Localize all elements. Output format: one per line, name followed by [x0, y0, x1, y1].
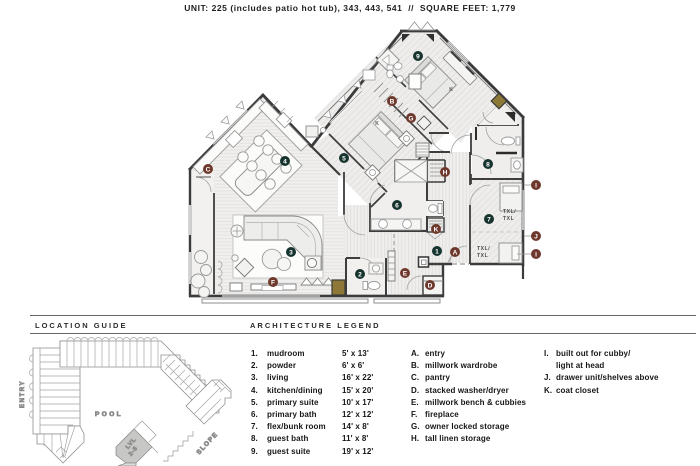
svg-text:I: I	[535, 182, 537, 189]
svg-text:7: 7	[487, 216, 491, 223]
svg-text:B: B	[390, 98, 395, 105]
svg-text:9: 9	[416, 53, 420, 60]
svg-text:TXL/: TXL/	[477, 246, 490, 252]
svg-text:TXL: TXL	[477, 253, 488, 259]
svg-text:K: K	[449, 87, 453, 93]
svg-text:8: 8	[486, 161, 490, 168]
svg-text:A: A	[453, 249, 458, 256]
svg-text:E: E	[403, 270, 408, 277]
svg-text:K: K	[434, 226, 439, 233]
svg-text:SLOPE: SLOPE	[195, 431, 219, 456]
svg-text:5: 5	[342, 155, 346, 162]
svg-text:TXL/: TXL/	[503, 209, 516, 215]
svg-text:ENTRY: ENTRY	[20, 380, 26, 408]
svg-text:J: J	[534, 233, 538, 240]
svg-text:K: K	[375, 121, 379, 127]
svg-text:TXL: TXL	[503, 216, 514, 222]
svg-text:I: I	[535, 251, 537, 258]
svg-text:H: H	[443, 169, 448, 176]
svg-text:2: 2	[358, 271, 362, 278]
svg-text:D: D	[428, 282, 433, 289]
svg-text:F: F	[271, 279, 275, 286]
svg-text:G: G	[408, 115, 413, 122]
svg-text:C: C	[206, 166, 211, 173]
svg-text:6: 6	[395, 202, 399, 209]
svg-text:4: 4	[283, 158, 287, 165]
svg-text:POOL: POOL	[95, 411, 123, 418]
svg-text:3: 3	[289, 249, 293, 256]
svg-text:1: 1	[435, 248, 439, 255]
